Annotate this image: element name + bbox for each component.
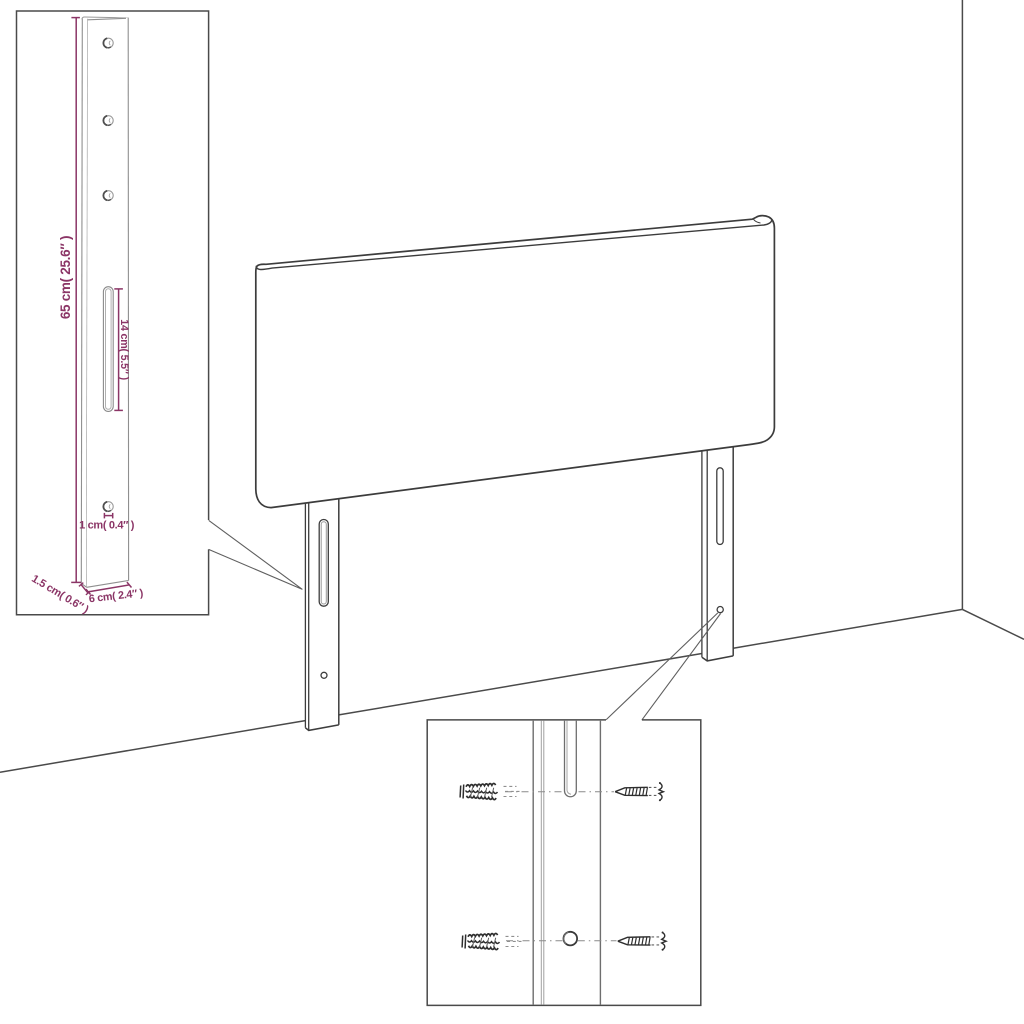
svg-text:65 cm( 25.6″ ): 65 cm( 25.6″ ) [58, 236, 73, 319]
svg-text:14 cm( 5.5″ ): 14 cm( 5.5″ ) [118, 319, 130, 380]
svg-text:1 cm( 0.4″ ): 1 cm( 0.4″ ) [79, 520, 135, 532]
